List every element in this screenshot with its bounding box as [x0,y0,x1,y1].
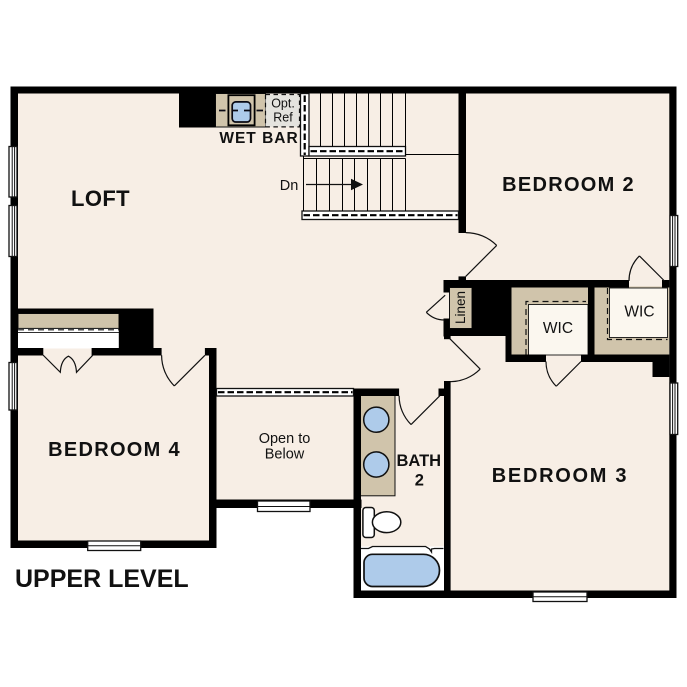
svg-text:WIC: WIC [543,320,573,337]
svg-text:Ref: Ref [273,111,293,125]
svg-text:BATH: BATH [396,452,441,470]
svg-text:Opt.: Opt. [271,97,295,111]
svg-text:WIC: WIC [624,304,654,321]
svg-text:Dn: Dn [280,178,299,194]
svg-text:BEDROOM 2: BEDROOM 2 [502,174,635,196]
svg-text:Linen: Linen [453,291,468,324]
svg-text:Open to: Open to [259,431,311,447]
svg-text:BEDROOM 4: BEDROOM 4 [48,439,181,461]
svg-text:2: 2 [415,472,424,490]
svg-text:LOFT: LOFT [71,186,130,211]
svg-text:UPPER LEVEL: UPPER LEVEL [15,565,189,593]
svg-text:WET BAR: WET BAR [219,130,298,147]
svg-text:Below: Below [265,447,305,463]
svg-text:BEDROOM 3: BEDROOM 3 [492,465,628,487]
